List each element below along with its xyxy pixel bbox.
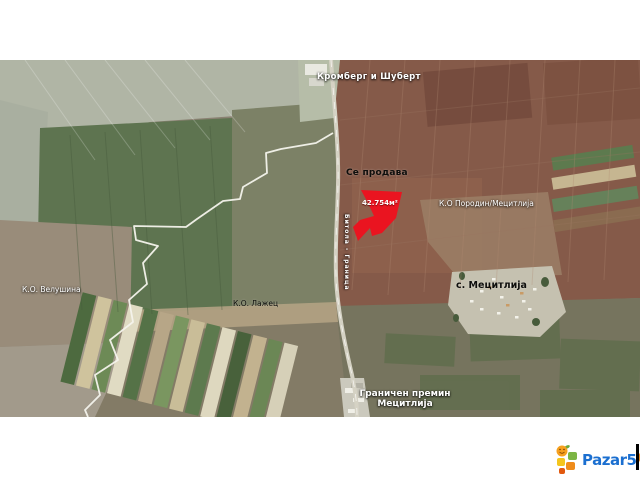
image-edge-bar [636,444,639,470]
pazar5-logo[interactable]: Pazar5.mk [556,442,640,478]
satellite-terrain [0,60,640,417]
pazar5-mascot-icon [556,444,580,476]
listing-image-page: Кромберг и Шуберт Се продава 42.754м² К.… [0,0,640,480]
pazar5-logo-text: Pazar5 [582,451,636,469]
village-buildings [448,266,566,337]
satellite-map-image[interactable] [0,60,640,417]
